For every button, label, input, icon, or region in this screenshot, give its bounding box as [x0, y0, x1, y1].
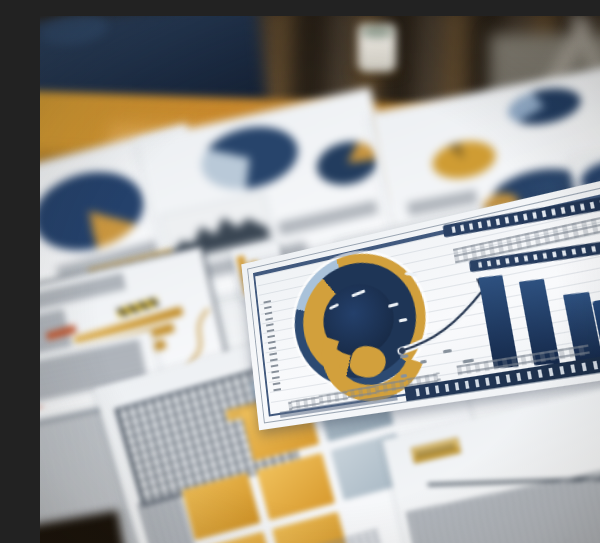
report-text [40, 273, 126, 313]
matrix-cell-gold [182, 473, 261, 541]
pie-chart [505, 83, 584, 130]
gold-pie-chart [429, 136, 499, 184]
photograph [40, 16, 600, 543]
pie-chart [312, 136, 382, 191]
paragraph-text [406, 462, 600, 543]
caption-text [278, 201, 378, 235]
matrix-cell-gold [256, 453, 335, 521]
white-cup [358, 24, 396, 72]
pie-chart [195, 118, 304, 199]
gold-label [411, 437, 461, 463]
